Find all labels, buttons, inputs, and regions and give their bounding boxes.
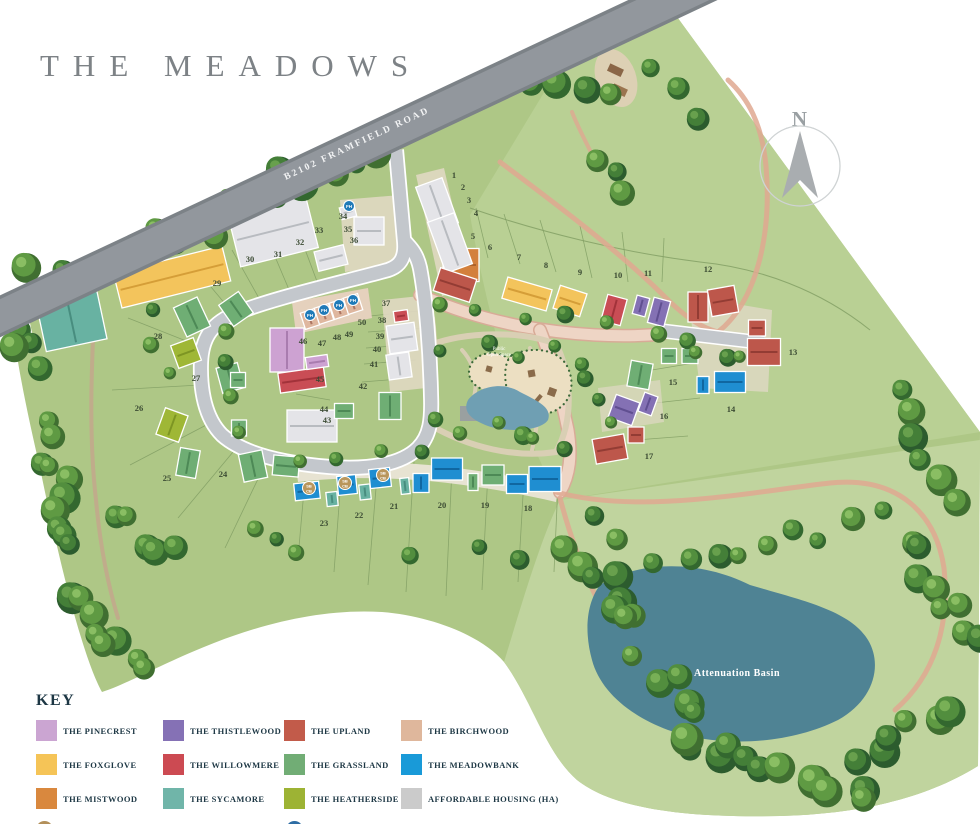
tree-highlight	[617, 609, 625, 617]
house-grassland	[379, 393, 401, 420]
plot-number: 5	[471, 231, 475, 241]
key-column: THE UPLANDTHE GRASSLANDTHE HEATHERSIDE	[284, 720, 401, 809]
tree-highlight	[44, 428, 53, 437]
plot-number: 25	[163, 473, 172, 483]
plot-number: 18	[524, 503, 533, 513]
sb-badge-line2: CB	[380, 475, 386, 480]
tree-highlight	[855, 790, 864, 799]
plot-number: 42	[359, 381, 368, 391]
tree-highlight	[732, 550, 738, 556]
tree-highlight	[684, 551, 692, 559]
tree-highlight	[845, 510, 853, 518]
sb-badge: SBCB	[303, 482, 316, 495]
tree-highlight	[42, 414, 49, 421]
plot-number: 17	[645, 451, 654, 461]
tree-highlight	[517, 429, 524, 436]
tree-highlight	[588, 509, 595, 516]
tree-highlight	[555, 539, 565, 549]
tree-highlight	[295, 456, 300, 461]
house-ha	[386, 322, 418, 354]
tree-highlight	[803, 769, 815, 781]
plot-number: 30	[246, 254, 255, 264]
plot-number: 34	[339, 211, 348, 221]
plot-number: 46	[299, 336, 308, 346]
plot-number: 41	[370, 359, 379, 369]
fh-badge: FH	[348, 295, 359, 306]
plot-number: 37	[382, 298, 391, 308]
house-upland	[592, 434, 628, 464]
house-sycamore	[359, 484, 372, 500]
tree-highlight	[494, 418, 499, 423]
tree-highlight	[146, 542, 156, 552]
tree-highlight	[719, 736, 728, 745]
tree-highlight	[32, 359, 41, 368]
house-pinecrest	[270, 328, 304, 372]
plot-number: 48	[333, 332, 342, 342]
tree-highlight	[234, 427, 239, 432]
tree-highlight	[879, 728, 888, 737]
tree-highlight	[484, 337, 490, 343]
tree-highlight	[646, 556, 653, 563]
tree-highlight	[559, 443, 565, 449]
plot-number: 9	[578, 267, 582, 277]
roof-ridge	[332, 495, 333, 503]
tree-highlight	[54, 487, 65, 498]
tree-highlight	[513, 553, 520, 560]
park-label-line2: Open Space	[487, 353, 512, 358]
roof-ridge	[365, 488, 366, 497]
fh-badge-label: FH	[307, 313, 314, 318]
plot-number: 47	[318, 338, 327, 348]
key-label: THE MEADOWBANK	[428, 760, 519, 770]
plot-number: 36	[350, 235, 359, 245]
plot-number: 20	[438, 500, 447, 510]
tree-highlight	[521, 314, 525, 318]
house-meadowbank	[529, 467, 561, 492]
tree-highlight	[225, 391, 230, 396]
plot-number: 29	[213, 278, 222, 288]
tree-highlight	[712, 547, 721, 556]
tree-highlight	[471, 306, 475, 310]
key-label: THE THISTLEWOOD	[190, 726, 281, 736]
tree-highlight	[84, 605, 94, 615]
house-upland	[749, 320, 766, 336]
tree-highlight	[691, 348, 696, 353]
plot-number: 50	[358, 317, 367, 327]
tree-highlight	[291, 547, 297, 553]
tree-highlight	[550, 341, 554, 345]
tree-highlight	[56, 527, 64, 535]
tree-highlight	[148, 305, 153, 310]
plot-number: 3	[467, 195, 471, 205]
tree-highlight	[607, 418, 611, 422]
fh-badge: FH	[319, 305, 330, 316]
plot-number: 16	[660, 411, 669, 421]
key-item-pinecrest: THE PINECREST	[36, 720, 163, 741]
fh-badge-label: FH	[350, 298, 357, 303]
tree-highlight	[430, 414, 435, 419]
key-item-ha: AFFORDABLE HOUSING (HA)	[401, 788, 581, 809]
plot-number: 44	[320, 404, 329, 414]
tree-highlight	[948, 492, 958, 502]
roof-ridge	[397, 315, 405, 316]
tree-highlight	[89, 627, 97, 635]
fh-badge: FH	[305, 310, 316, 321]
key-label: AFFORDABLE HOUSING (HA)	[428, 794, 559, 804]
tree-highlight	[45, 500, 55, 510]
tree-highlight	[603, 86, 611, 94]
tree-highlight	[585, 570, 593, 578]
house-upland	[707, 285, 738, 316]
key-column: THE THISTLEWOODTHE WILLOWMERETHE SYCAMOR…	[163, 720, 284, 809]
plot-number: 27	[192, 373, 201, 383]
tree-highlight	[572, 556, 583, 567]
tree-highlight	[644, 61, 650, 67]
sb-badge-line2: CB	[342, 483, 348, 488]
house-ha	[354, 217, 384, 245]
plot-number: 2	[461, 182, 465, 192]
fh-badge: FH	[344, 201, 355, 212]
key-item-mistwood: THE MISTWOOD	[36, 788, 163, 809]
tree-highlight	[136, 660, 144, 668]
plot-number: 22	[355, 510, 364, 520]
tree-highlight	[687, 705, 694, 712]
tree-highlight	[690, 111, 698, 119]
tree-highlight	[902, 402, 912, 412]
key-legend: THE PINECRESTTHE FOXGLOVETHE MISTWOODTHE…	[36, 720, 596, 809]
key-label: THE UPLAND	[311, 726, 371, 736]
tree-highlight	[376, 446, 381, 451]
tree-highlight	[455, 428, 460, 433]
roof-ridge	[404, 481, 405, 491]
tree-highlight	[614, 184, 623, 193]
key-swatch-pinecrest	[36, 720, 57, 741]
house-meadowbank	[413, 474, 429, 493]
key-swatch-meadowbank	[401, 754, 422, 775]
plot-number: 11	[644, 268, 652, 278]
key-column: THE PINECRESTTHE FOXGLOVETHE MISTWOOD	[36, 720, 163, 809]
key-swatch-birchwood	[401, 720, 422, 741]
plot-number: 39	[376, 331, 385, 341]
tree-highlight	[435, 299, 440, 304]
tree-highlight	[786, 522, 793, 529]
tree-highlight	[131, 652, 138, 659]
plot-number: 1	[452, 170, 456, 180]
tree-highlight	[120, 509, 127, 516]
tree-highlight	[816, 780, 827, 791]
sb-badge: SBCB	[377, 469, 390, 482]
tree-highlight	[735, 352, 739, 356]
tree-highlight	[625, 649, 632, 656]
tree-highlight	[898, 713, 906, 721]
tree-highlight	[109, 509, 117, 517]
tree-highlight	[769, 756, 780, 767]
tree-highlight	[590, 153, 598, 161]
key-swatch-willowmere	[163, 754, 184, 775]
tree-highlight	[895, 383, 902, 390]
key-item-willowmere: THE WILLOWMERE	[163, 754, 284, 775]
tree-highlight	[910, 538, 919, 547]
plot-number: 8	[544, 260, 548, 270]
plot-number: 26	[135, 403, 144, 413]
park-label-line1: Public	[493, 347, 507, 352]
tree-highlight	[610, 532, 618, 540]
house-grassland	[335, 404, 354, 419]
key-item-upland: THE UPLAND	[284, 720, 401, 741]
plot-number: 23	[320, 518, 329, 528]
tree-highlight	[474, 541, 479, 546]
tree-highlight	[671, 667, 680, 676]
tree-highlight	[220, 356, 226, 362]
tree-highlight	[650, 673, 660, 683]
plot-number: 21	[390, 501, 399, 511]
key-heading: KEY	[36, 692, 596, 710]
fh-badge-label: FH	[321, 308, 328, 313]
plot-number: 31	[274, 249, 283, 259]
tree-highlight	[578, 80, 587, 89]
key-label: THE MISTWOOD	[63, 794, 137, 804]
tree-highlight	[331, 454, 336, 459]
plot-number: 15	[669, 377, 678, 387]
plot-number: 28	[154, 331, 163, 341]
house-sycamore	[400, 478, 411, 495]
tree-highlight	[62, 537, 69, 544]
tree-highlight	[682, 335, 688, 341]
tree-highlight	[404, 549, 410, 555]
key-label: THE SYCAMORE	[190, 794, 264, 804]
plot-number: 14	[727, 404, 736, 414]
key-label: THE PINECREST	[63, 726, 137, 736]
tree-highlight	[221, 326, 227, 332]
plot-number: 19	[481, 500, 490, 510]
tree-highlight	[60, 469, 70, 479]
tree-highlight	[605, 599, 615, 609]
plot-number: 43	[323, 415, 332, 425]
tree-highlight	[912, 452, 920, 460]
house-grassland	[482, 465, 504, 485]
tree-highlight	[145, 339, 151, 345]
tree-highlight	[737, 749, 746, 758]
house-grassland	[627, 360, 653, 389]
sb-badge: SBCB	[339, 477, 352, 490]
key-swatch-upland	[284, 720, 305, 741]
plot-number: 10	[614, 270, 623, 280]
key-swatch-foxglove	[36, 754, 57, 775]
house-grassland	[231, 373, 246, 388]
house-grassland	[662, 349, 677, 364]
house-upland	[628, 427, 644, 443]
plot-number: 35	[344, 224, 353, 234]
house-grassland	[238, 450, 267, 482]
tree-highlight	[671, 80, 679, 88]
tree-highlight	[611, 165, 618, 172]
tree-highlight	[579, 373, 585, 379]
fh-badge-label: FH	[346, 204, 353, 209]
plot-number: 13	[789, 347, 798, 357]
key-swatch-sycamore	[163, 788, 184, 809]
key-label: THE WILLOWMERE	[190, 760, 279, 770]
tree-highlight	[931, 469, 942, 480]
tree-highlight	[722, 351, 728, 357]
house-upland	[688, 292, 708, 322]
tree-highlight	[43, 460, 50, 467]
plot-number: 6	[488, 242, 492, 252]
tree-highlight	[594, 395, 599, 400]
tree-highlight	[927, 579, 937, 589]
key-swatch-mistwood	[36, 788, 57, 809]
plot-number: 38	[378, 315, 387, 325]
house-meadowbank	[715, 372, 746, 393]
key-item-heatherside: THE HEATHERSIDE	[284, 788, 401, 809]
tree-highlight	[676, 727, 688, 739]
house-meadowbank	[697, 377, 709, 394]
tree-highlight	[848, 752, 857, 761]
tree-highlight	[72, 589, 81, 598]
plot-number: 45	[316, 374, 325, 384]
plot-number: 32	[296, 237, 305, 247]
tree-highlight	[272, 534, 277, 539]
tree-highlight	[939, 700, 950, 711]
key-item-grassland: THE GRASSLAND	[284, 754, 401, 775]
tree-highlight	[436, 346, 440, 350]
plot-number: 49	[345, 329, 354, 339]
key-column: THE BIRCHWOODTHE MEADOWBANKAFFORDABLE HO…	[401, 720, 581, 809]
key-label: THE GRASSLAND	[311, 760, 389, 770]
house-grassland	[176, 447, 201, 478]
key-item-foxglove: THE FOXGLOVE	[36, 754, 163, 775]
tree-highlight	[751, 760, 760, 769]
tree-highlight	[528, 433, 532, 437]
tree-highlight	[602, 317, 607, 322]
tree-highlight	[877, 504, 883, 510]
house-ha	[386, 352, 412, 380]
fh-badge-label: FH	[336, 303, 343, 308]
tree-highlight	[514, 353, 518, 357]
tree-highlight	[417, 447, 422, 452]
key-item-meadowbank: THE MEADOWBANK	[401, 754, 581, 775]
plot-number: 24	[219, 469, 228, 479]
house-upland	[748, 339, 781, 366]
key-label: THE HEATHERSIDE	[311, 794, 399, 804]
fh-badge: FH	[334, 300, 345, 311]
tree-highlight	[903, 427, 913, 437]
north-label: N	[792, 107, 808, 131]
tree-highlight	[653, 328, 659, 334]
house-willowmere	[393, 310, 408, 323]
key-swatch-ha	[401, 788, 422, 809]
site-plan-page: B2102 FRAMFIELD ROAD FHFHFHFHFHSBCBSBCBS…	[0, 0, 980, 824]
key-swatch-thistlewood	[163, 720, 184, 741]
key-label: THE FOXGLOVE	[63, 760, 137, 770]
house-sycamore	[326, 491, 338, 506]
key-item-sycamore: THE SYCAMORE	[163, 788, 284, 809]
tree-highlight	[951, 596, 960, 605]
basin-label: Attenuation Basin	[694, 668, 780, 679]
house-meadowbank	[432, 458, 463, 480]
tree-highlight	[4, 337, 14, 347]
tree-highlight	[577, 359, 582, 364]
tree-highlight	[166, 369, 170, 373]
tree-highlight	[761, 538, 768, 545]
sb-badge-line2: CB	[306, 488, 312, 493]
tree-highlight	[16, 257, 26, 267]
key-swatch-grassland	[284, 754, 305, 775]
plot-number: 33	[315, 225, 324, 235]
house-meadowbank	[507, 475, 528, 494]
tree-highlight	[956, 624, 965, 633]
tree-highlight	[934, 601, 941, 608]
tree-highlight	[167, 539, 176, 548]
tree-highlight	[559, 308, 565, 314]
key-item-thistlewood: THE THISTLEWOOD	[163, 720, 284, 741]
tree-highlight	[679, 693, 690, 704]
key-item-birchwood: THE BIRCHWOOD	[401, 720, 581, 741]
development-title: THE MEADOWS	[40, 48, 422, 84]
house-pinecrest	[305, 355, 328, 370]
tree-highlight	[812, 535, 818, 541]
key-swatch-heatherside	[284, 788, 305, 809]
key-label: THE BIRCHWOOD	[428, 726, 509, 736]
house-grassland	[468, 474, 478, 491]
plot-number: 40	[373, 344, 382, 354]
plot-number: 12	[704, 264, 713, 274]
tree-highlight	[95, 635, 104, 644]
tree-highlight	[908, 568, 918, 578]
tree-highlight	[607, 565, 618, 576]
key-panel: KEY THE PINECRESTTHE FOXGLOVETHE MISTWOO…	[36, 692, 596, 824]
tree-highlight	[250, 523, 256, 529]
